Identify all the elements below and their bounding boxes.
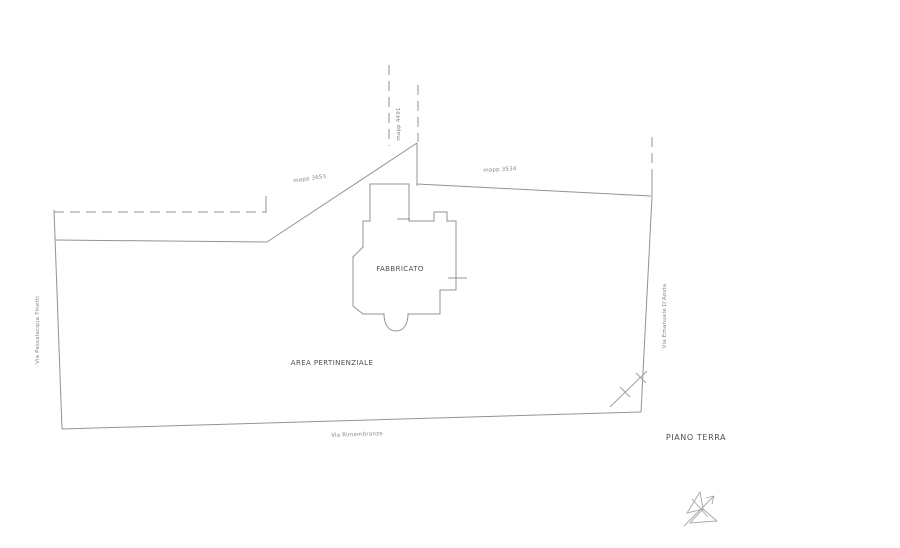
inner-boundary-line <box>55 240 267 242</box>
top-boundary-line <box>417 184 651 196</box>
building-label: FABBRICATO <box>376 265 424 273</box>
site-plan-canvas: mapp 3653 mapp 4491 mapp 3534 FABBRICATO… <box>0 0 900 548</box>
bottom-boundary-line <box>62 412 641 429</box>
north-arrow-icon <box>684 492 717 526</box>
parcel-label-mapp-3534: mapp 3534 <box>483 166 517 174</box>
parcel-label-mapp-3653: mapp 3653 <box>293 174 327 185</box>
site-plan-page: mapp 3653 mapp 4491 mapp 3534 FABBRICATO… <box>0 0 900 548</box>
building-outline <box>353 184 456 331</box>
north-arrow-cross-stroke <box>692 499 708 517</box>
dashed-boundaries <box>54 65 652 212</box>
street-label-left: Via Passalacqua Tinetti <box>35 296 41 364</box>
building <box>353 184 467 331</box>
parcel-label-mapp-4491: mapp 4491 <box>396 107 402 140</box>
floor-title-label: PIANO TERRA <box>666 433 726 442</box>
left-boundary-line <box>54 210 62 429</box>
area-label: AREA PERTINENZIALE <box>291 359 374 367</box>
diagonal-boundary-line <box>267 143 417 242</box>
gate-tick-2 <box>636 373 646 383</box>
labels: mapp 3653 mapp 4491 mapp 3534 FABBRICATO… <box>35 107 726 442</box>
street-label-bottom: Via Rimembranze <box>331 431 383 439</box>
right-boundary-line <box>641 177 652 412</box>
street-label-right: Via Emanuele D'Aosta <box>662 284 668 349</box>
